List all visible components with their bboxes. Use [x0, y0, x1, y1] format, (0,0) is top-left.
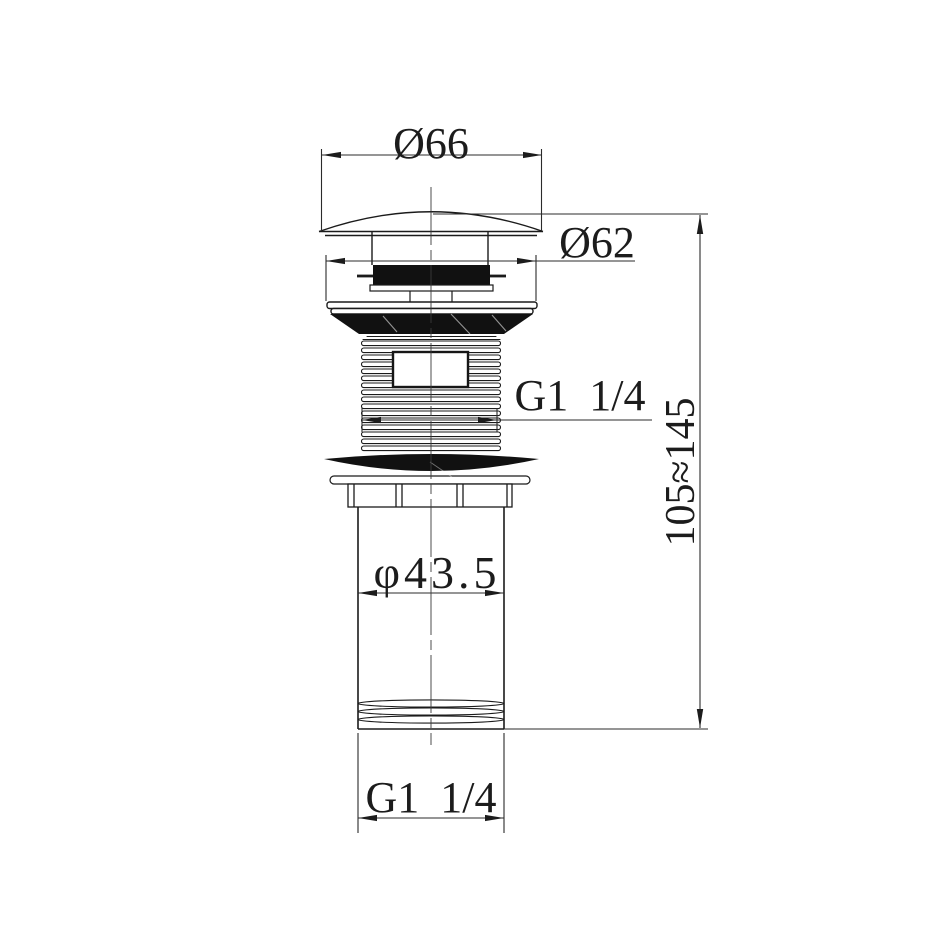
cone-gasket: [330, 314, 533, 334]
cap-diameter-label: Ø66: [393, 119, 469, 168]
body-flange: [327, 302, 537, 314]
cap-seal: [357, 265, 506, 302]
dim-bottom-thread: G1 1/4: [358, 733, 504, 833]
flange-diameter-label: Ø62: [559, 218, 635, 267]
overall-height-label: 105≈145: [658, 397, 704, 546]
body-diameter-label: φ43.5: [373, 547, 500, 598]
technical-drawing: Ø66 Ø62 G1 1/4: [0, 0, 940, 940]
bowl-gasket: [324, 454, 539, 477]
overflow-hole: [393, 352, 468, 387]
drawing-page: Ø66 Ø62 G1 1/4: [0, 0, 940, 940]
lock-nut: [348, 484, 512, 507]
top-thread-label: G1 1/4: [515, 371, 646, 420]
thread-relief-rings: [363, 337, 500, 340]
washer: [330, 476, 530, 484]
bottom-thread-label: G1 1/4: [366, 773, 497, 822]
